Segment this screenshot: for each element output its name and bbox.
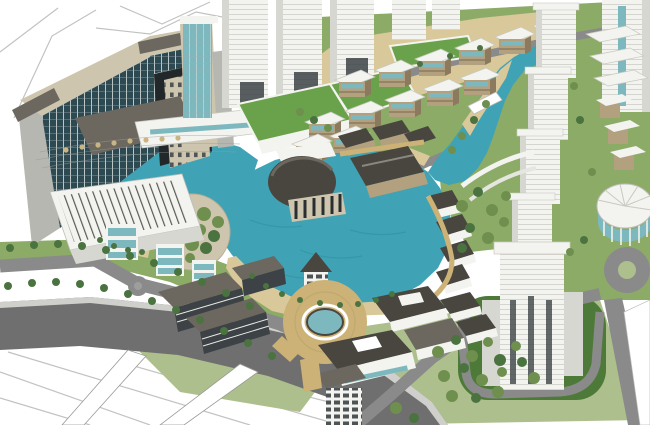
rendering-canvas: [0, 0, 650, 425]
white-tower-3: [330, 0, 374, 82]
teal-glass-slab: [181, 18, 214, 118]
architectural-rendering: [0, 0, 650, 425]
white-tower-2: [276, 0, 322, 98]
white-tower-1: [222, 0, 268, 108]
fountain: [307, 309, 343, 335]
